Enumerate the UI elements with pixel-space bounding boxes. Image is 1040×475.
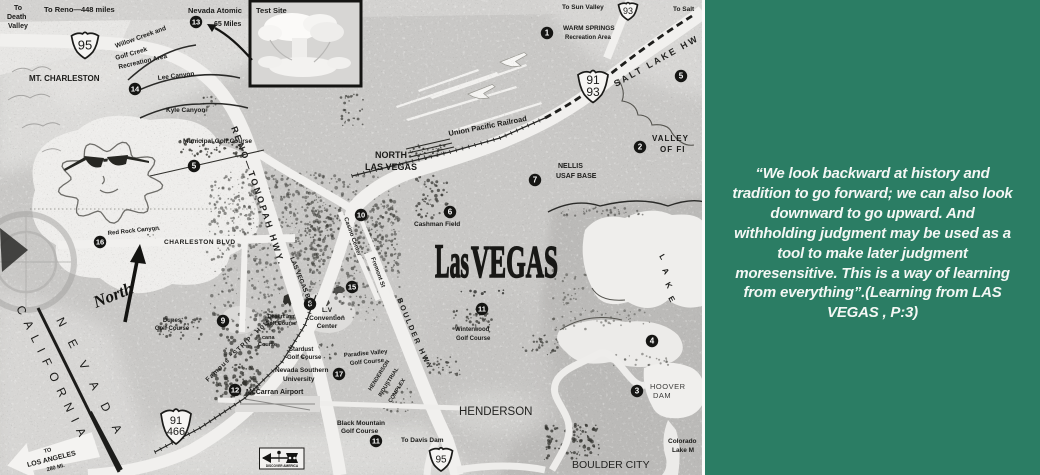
svg-text:To: To bbox=[14, 5, 22, 12]
svg-text:LAS VEGAS: LAS VEGAS bbox=[365, 162, 417, 172]
svg-text:Golf Course: Golf Course bbox=[287, 355, 322, 361]
svg-text:OF FI: OF FI bbox=[660, 145, 685, 154]
svg-text:Death: Death bbox=[7, 14, 26, 21]
svg-text:3: 3 bbox=[635, 387, 640, 396]
svg-text:VALLEY: VALLEY bbox=[652, 134, 689, 143]
svg-text:Valley: Valley bbox=[8, 23, 28, 30]
svg-text:Golf Course: Golf Course bbox=[456, 336, 491, 342]
svg-text:Nevada Southern: Nevada Southern bbox=[275, 367, 328, 374]
svg-text:L.V: L.V bbox=[322, 307, 333, 314]
svg-text:NELLIS: NELLIS bbox=[558, 163, 583, 170]
svg-text:15: 15 bbox=[348, 283, 356, 292]
svg-text:To Davis Dam: To Davis Dam bbox=[401, 437, 444, 444]
svg-text:Cashman Field: Cashman Field bbox=[414, 221, 460, 228]
svg-text:To Salt: To Salt bbox=[673, 6, 695, 13]
svg-text:5: 5 bbox=[679, 72, 684, 81]
svg-text:11: 11 bbox=[372, 437, 380, 446]
svg-text:Center: Center bbox=[317, 323, 338, 330]
svg-text:5: 5 bbox=[192, 162, 197, 171]
svg-text:McCarran Airport: McCarran Airport bbox=[246, 389, 304, 396]
svg-text:cana: cana bbox=[262, 335, 275, 341]
svg-text:13: 13 bbox=[192, 18, 200, 27]
svg-text:Course: Course bbox=[258, 342, 277, 348]
svg-text:Nevada Atomic: Nevada Atomic bbox=[188, 6, 242, 15]
svg-text:7: 7 bbox=[533, 176, 538, 185]
svg-text:WARM SPRINGS: WARM SPRINGS bbox=[563, 25, 615, 32]
svg-text:To Reno—448 miles: To Reno—448 miles bbox=[44, 5, 115, 14]
svg-text:17: 17 bbox=[335, 370, 343, 379]
svg-text:16: 16 bbox=[96, 238, 104, 247]
svg-text:Colorado: Colorado bbox=[668, 438, 697, 445]
svg-text:To Sun Valley: To Sun Valley bbox=[562, 4, 604, 11]
svg-text:93: 93 bbox=[623, 6, 633, 16]
svg-text:Dunes: Dunes bbox=[163, 318, 182, 324]
svg-text:93: 93 bbox=[586, 85, 600, 99]
svg-text:Stardust: Stardust bbox=[289, 347, 313, 353]
svg-text:USAF BASE: USAF BASE bbox=[556, 173, 597, 180]
svg-text:HENDERSON: HENDERSON bbox=[459, 406, 532, 418]
svg-text:4: 4 bbox=[650, 337, 655, 346]
svg-text:1: 1 bbox=[545, 29, 550, 38]
svg-text:University: University bbox=[283, 376, 315, 383]
svg-text:NORTH: NORTH bbox=[375, 150, 407, 160]
svg-text:Convention: Convention bbox=[309, 315, 345, 322]
svg-text:Winterwood: Winterwood bbox=[455, 327, 490, 333]
svg-text:11: 11 bbox=[478, 305, 486, 314]
svg-text:6: 6 bbox=[448, 208, 453, 217]
svg-text:Golf Course: Golf Course bbox=[155, 326, 190, 332]
svg-text:Lake M: Lake M bbox=[672, 447, 694, 454]
svg-text:12: 12 bbox=[231, 386, 239, 395]
svg-text:2: 2 bbox=[638, 143, 643, 152]
svg-text:VEGAS: VEGAS bbox=[471, 236, 558, 287]
svg-text:Recreation Area: Recreation Area bbox=[565, 35, 611, 41]
svg-text:Black Mountain: Black Mountain bbox=[337, 420, 385, 427]
svg-text:Kyle Canyon: Kyle Canyon bbox=[166, 107, 205, 114]
svg-text:95: 95 bbox=[435, 454, 447, 465]
svg-text:CHARLESTON BLVD: CHARLESTON BLVD bbox=[164, 239, 236, 246]
svg-text:466: 466 bbox=[167, 426, 185, 438]
svg-text:DAM: DAM bbox=[653, 391, 671, 400]
svg-text:9: 9 bbox=[221, 317, 226, 326]
svg-text:10: 10 bbox=[357, 211, 365, 220]
svg-text:95: 95 bbox=[78, 37, 92, 52]
svg-text:DISCOVER AMERICA: DISCOVER AMERICA bbox=[266, 464, 299, 468]
svg-text:65 Miles: 65 Miles bbox=[214, 21, 241, 28]
svg-text:BOULDER CITY: BOULDER CITY bbox=[572, 459, 650, 471]
svg-text:Test Site: Test Site bbox=[256, 6, 287, 15]
svg-text:HOOVER: HOOVER bbox=[650, 382, 686, 391]
svg-text:Golf Course: Golf Course bbox=[341, 428, 379, 435]
svg-text:MT. CHARLESTON: MT. CHARLESTON bbox=[29, 74, 100, 83]
svg-text:14: 14 bbox=[131, 85, 140, 94]
svg-text:Las: Las bbox=[435, 235, 469, 288]
